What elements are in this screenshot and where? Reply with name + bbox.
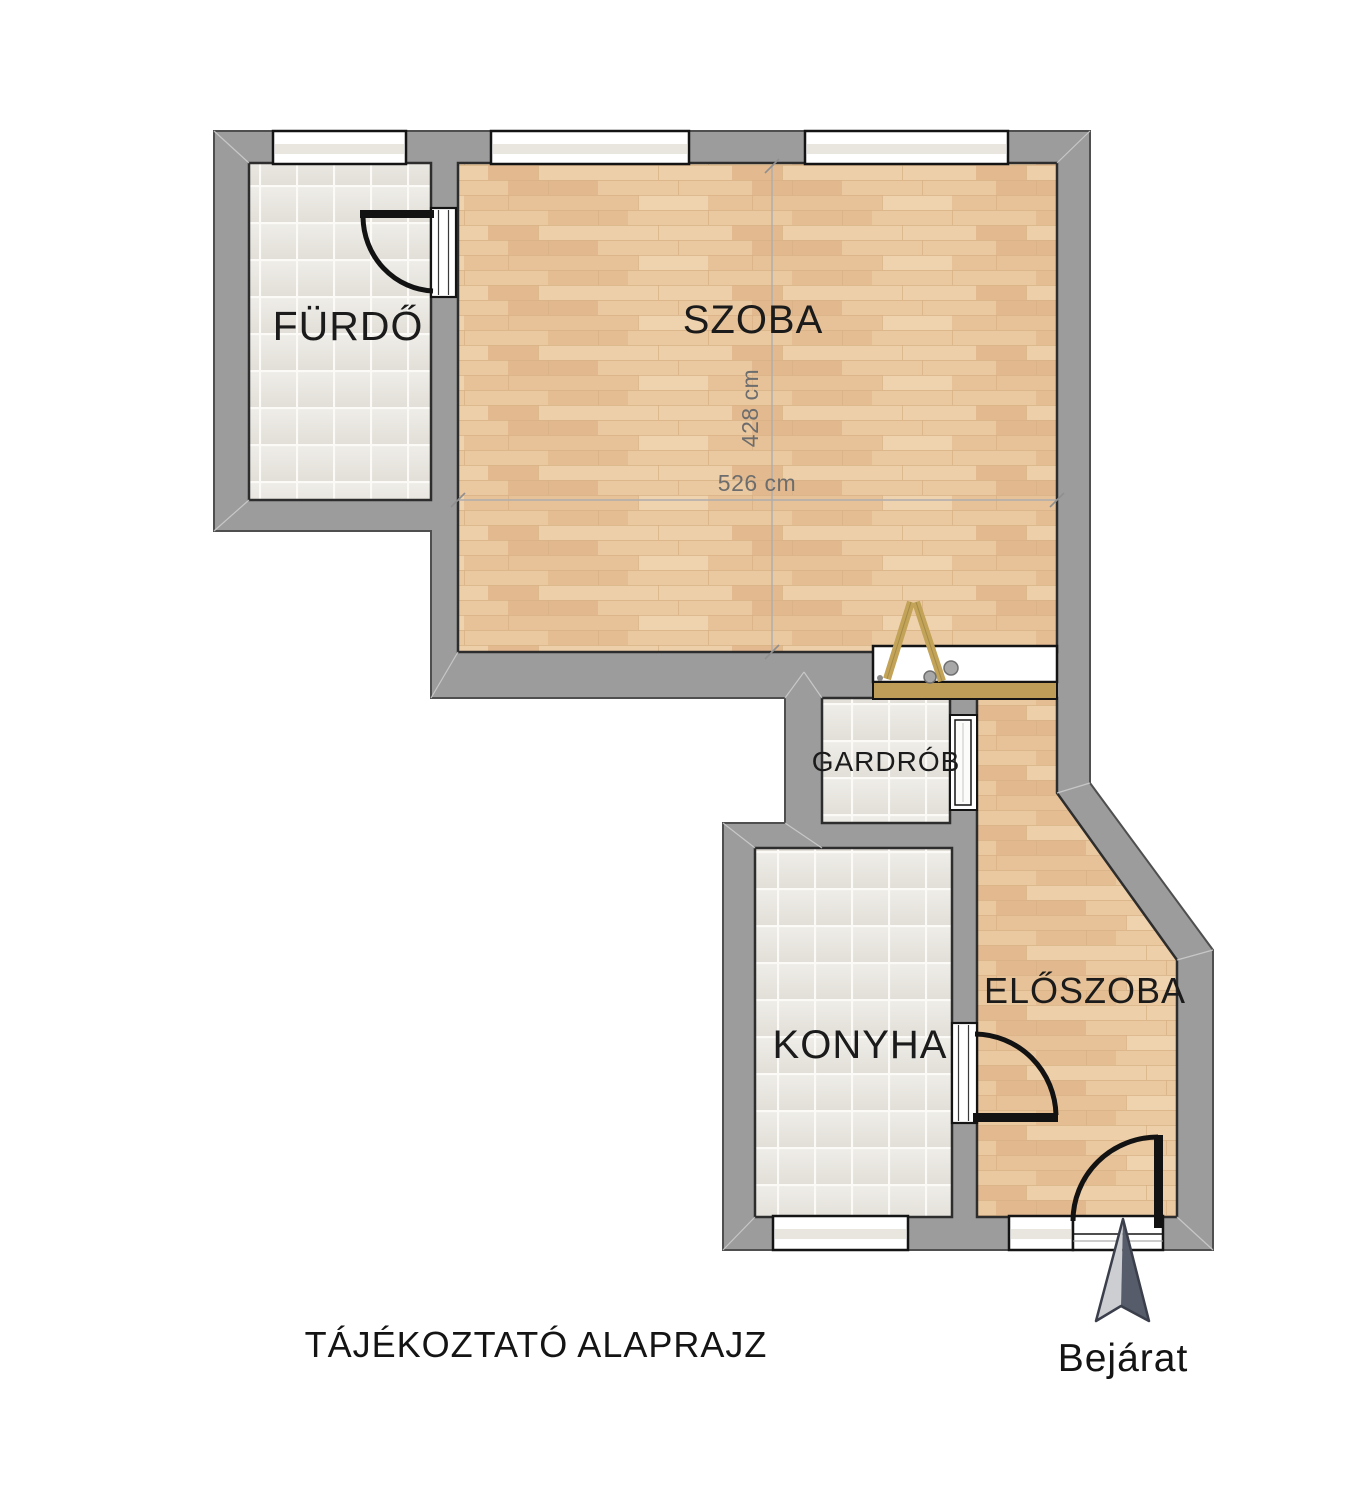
plan-caption: TÁJÉKOZTATÓ ALAPRAJZ [305,1324,768,1365]
szoba-window-left [491,131,689,164]
floor-plan-page: FÜRDŐ SZOBA GARDRÓB KONYHA ELŐSZOBA 428 … [0,0,1366,1497]
konyha-door-jamb [952,1023,977,1123]
dimension-width-label: 526 cm [718,470,796,496]
room-label-furdo: FÜRDŐ [273,303,424,349]
furdo-door-jamb [431,208,456,297]
furdo-window [273,131,406,164]
knob-small [877,675,883,681]
room-label-szoba: SZOBA [683,298,824,342]
room-label-konyha: KONYHA [773,1023,948,1067]
dimension-height-label: 428 cm [737,369,763,447]
entrance-door-leaf [1154,1135,1163,1228]
windows-top [273,131,1008,164]
entrance-label: Bejárat [1058,1337,1189,1380]
konyha-door-leaf [973,1113,1058,1122]
room-label-gardrob: GARDRÓB [812,746,961,777]
opening-gap [873,646,1057,682]
szoba-window-right [805,131,1008,164]
floor-plan-svg: FÜRDŐ SZOBA GARDRÓB KONYHA ELŐSZOBA 428 … [0,0,1366,1497]
room-label-eloszoba: ELŐSZOBA [984,970,1186,1011]
entrance-sidelight [1009,1216,1073,1250]
knob [924,671,936,683]
konyha-window [773,1216,908,1250]
furdo-door-leaf [360,210,434,218]
opening-plank [873,682,1057,699]
knob [944,661,958,675]
